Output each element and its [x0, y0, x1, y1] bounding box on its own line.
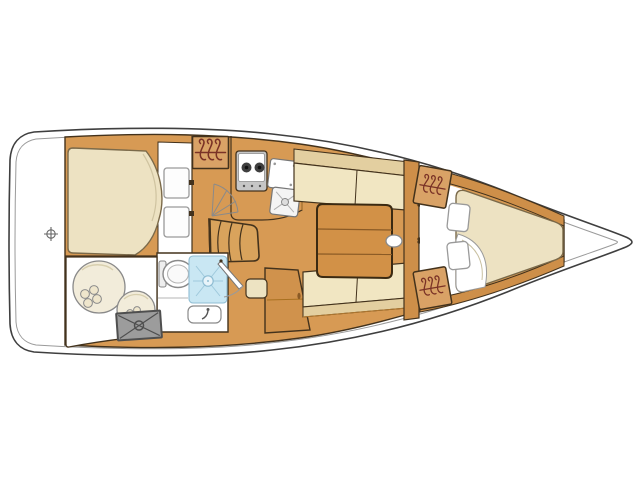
- floor-plan-canvas: [0, 0, 640, 480]
- drawer-handle-icon: [297, 293, 300, 299]
- forward-hanging-locker-starboard: [413, 267, 452, 310]
- aft-berth-mattress: [68, 148, 162, 255]
- aft-cabin-cushion: [164, 168, 189, 198]
- stove-icon: [236, 151, 267, 191]
- forward-cabin: [413, 165, 564, 312]
- saloon-table: [317, 204, 392, 278]
- aft-cabin: [65, 136, 192, 257]
- mast-post-icon: [386, 235, 402, 247]
- v-berth-pillow: [447, 203, 471, 232]
- v-berth-pillow: [447, 241, 471, 270]
- aft-cabin-walkway: [158, 142, 192, 257]
- washbasin-icon: [188, 306, 221, 323]
- forward-hanging-locker-port: [413, 165, 452, 208]
- drain-icon: [281, 198, 289, 206]
- sailboat-floor-plan: [0, 0, 640, 480]
- toilet-icon: [159, 261, 193, 288]
- stern-storage-locker: [66, 257, 162, 347]
- nav-seat: [246, 279, 267, 298]
- aft-hanging-locker: [193, 137, 229, 169]
- aft-cabin-cushion: [164, 207, 189, 237]
- engine-hatch-icon: [116, 310, 162, 340]
